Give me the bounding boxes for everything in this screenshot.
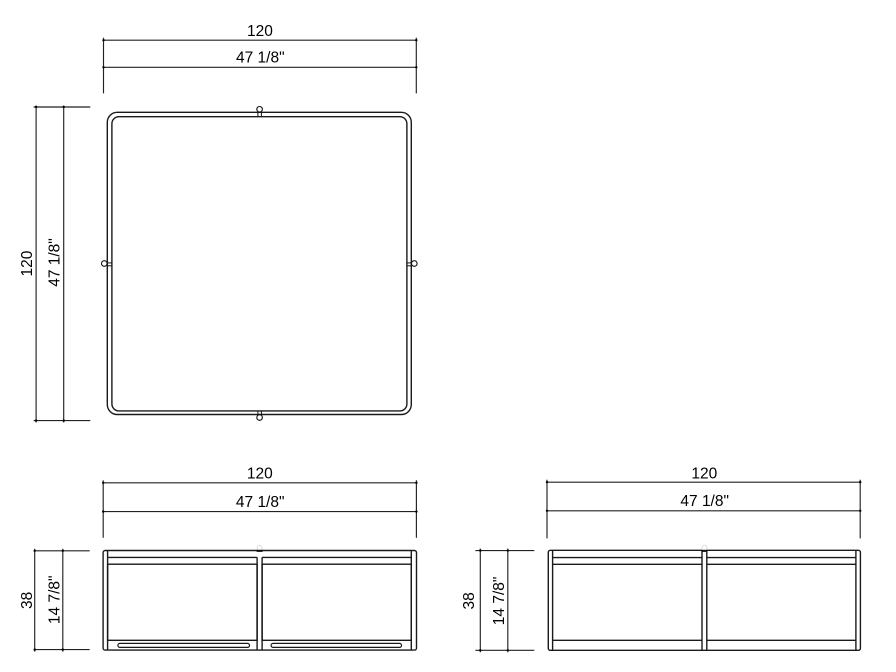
- svg-text:14 7/8": 14 7/8": [491, 577, 508, 626]
- svg-text:14 7/8": 14 7/8": [46, 575, 63, 624]
- svg-text:120: 120: [691, 465, 717, 482]
- svg-text:120: 120: [19, 250, 36, 276]
- svg-text:47 1/8": 47 1/8": [47, 238, 64, 287]
- svg-text:38: 38: [461, 592, 478, 609]
- svg-text:47 1/8": 47 1/8": [236, 494, 285, 511]
- svg-text:120: 120: [247, 465, 273, 482]
- svg-text:47 1/8": 47 1/8": [236, 50, 285, 67]
- svg-text:120: 120: [247, 23, 273, 40]
- svg-text:47 1/8": 47 1/8": [680, 493, 729, 510]
- svg-text:38: 38: [19, 592, 36, 609]
